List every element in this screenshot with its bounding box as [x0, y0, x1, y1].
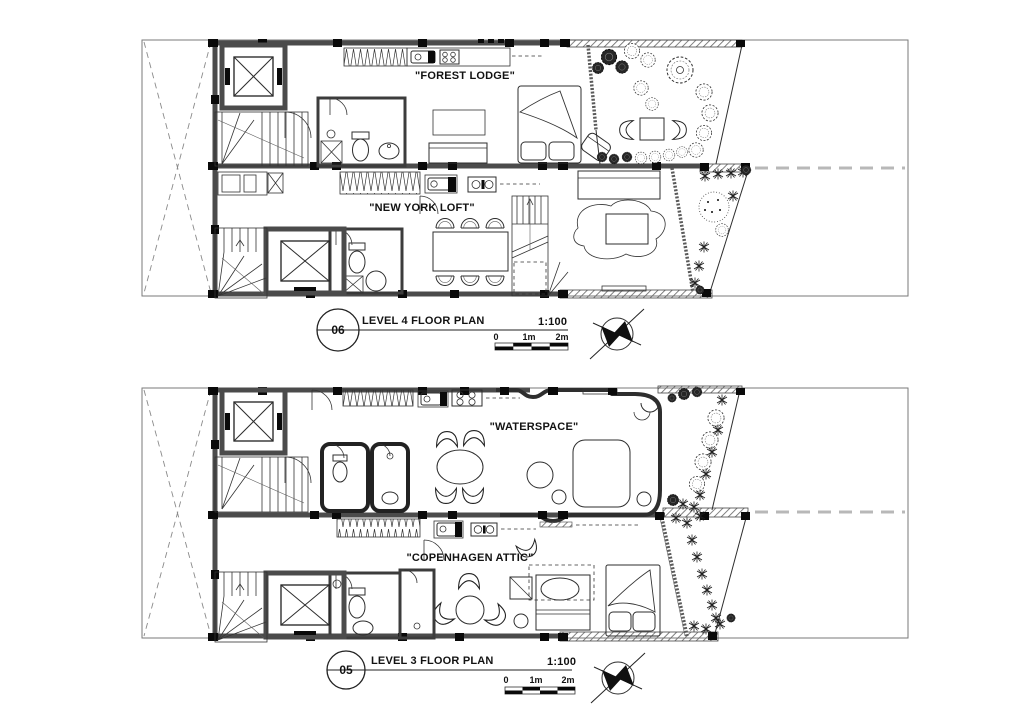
scale-bar-label: 1m: [529, 675, 542, 685]
scale-bar-label: 0: [503, 675, 508, 685]
bathroom-new-york-loft: [330, 229, 402, 293]
unit-label-waterspace: "WATERSPACE": [490, 421, 579, 433]
level4-plan: [142, 39, 908, 298]
furniture-forest-lodge: [429, 86, 612, 163]
stair-level4-central: [512, 196, 568, 296]
stair-level4-winder: [215, 228, 267, 298]
drawing-title: LEVEL 4 FLOOR PLAN: [362, 315, 485, 327]
garden-forest-lodge: [592, 43, 718, 164]
scale-bar-label: 2m: [555, 332, 568, 342]
stair-level3-upper: [215, 457, 308, 512]
drawing-scale: 1:100: [538, 316, 567, 328]
terrace-new-york-loft: [690, 165, 751, 294]
drawing-title: LEVEL 3 FLOOR PLAN: [371, 655, 494, 667]
garden-waterspace: [667, 387, 727, 512]
drawing-scale: 1:100: [547, 656, 576, 668]
living-new-york-loft: [574, 171, 665, 291]
plan-drawings: [0, 0, 1024, 724]
kitchen-waterspace: [343, 390, 520, 407]
unit-label-copenhagen-attic: "COPENHAGEN ATTIC": [406, 552, 533, 564]
scale-bar-label: 0: [493, 332, 498, 342]
scale-bar-label: 1m: [522, 332, 535, 342]
scale-bar-label: 2m: [561, 675, 574, 685]
floor-plan-sheet: "FOREST LODGE" "NEW YORK LOFT" "WATERSPA…: [0, 0, 1024, 724]
detail-number-badge: 05: [339, 663, 352, 677]
bathroom-waterspace: [322, 444, 408, 511]
unit-label-new-york-loft: "NEW YORK LOFT": [369, 202, 475, 214]
stair-level3-winder: [215, 572, 267, 642]
unit-label-forest-lodge: "FOREST LODGE": [415, 70, 515, 82]
bathroom-level4-upper: [318, 98, 405, 166]
stair-level4-upper: [215, 112, 308, 166]
dining-set-new-york-loft: [433, 219, 508, 286]
detail-number-badge: 06: [331, 323, 344, 337]
kitchen-level4-upper: [344, 48, 543, 66]
